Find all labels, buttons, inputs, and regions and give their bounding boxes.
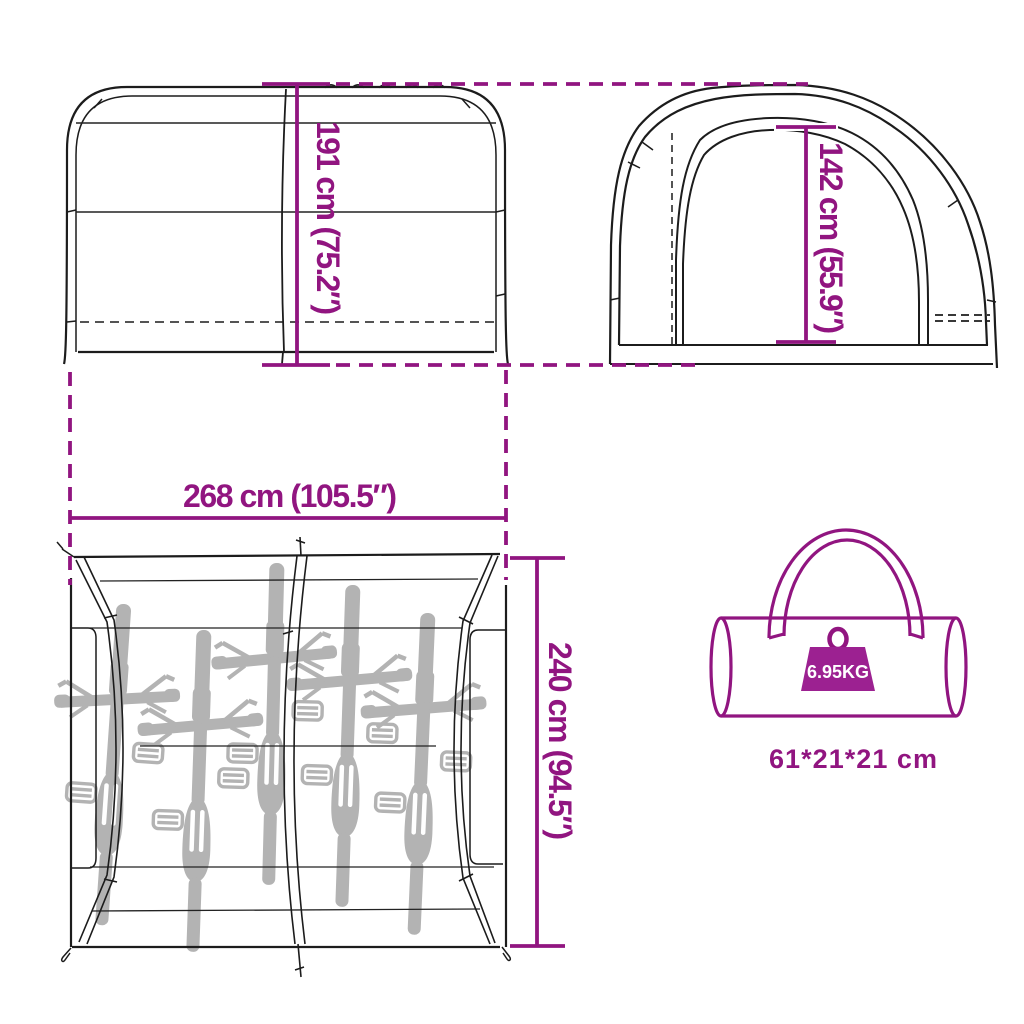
svg-text:6.95KG: 6.95KG bbox=[807, 662, 869, 682]
svg-text:240 cm (94.5″): 240 cm (94.5″) bbox=[542, 642, 578, 840]
svg-text:191 cm (75.2″): 191 cm (75.2″) bbox=[310, 121, 346, 315]
svg-text:142 cm (55.9″): 142 cm (55.9″) bbox=[813, 142, 849, 334]
svg-text:61*21*21 cm: 61*21*21 cm bbox=[769, 744, 937, 774]
svg-text:268 cm (105.5″): 268 cm (105.5″) bbox=[183, 478, 397, 514]
